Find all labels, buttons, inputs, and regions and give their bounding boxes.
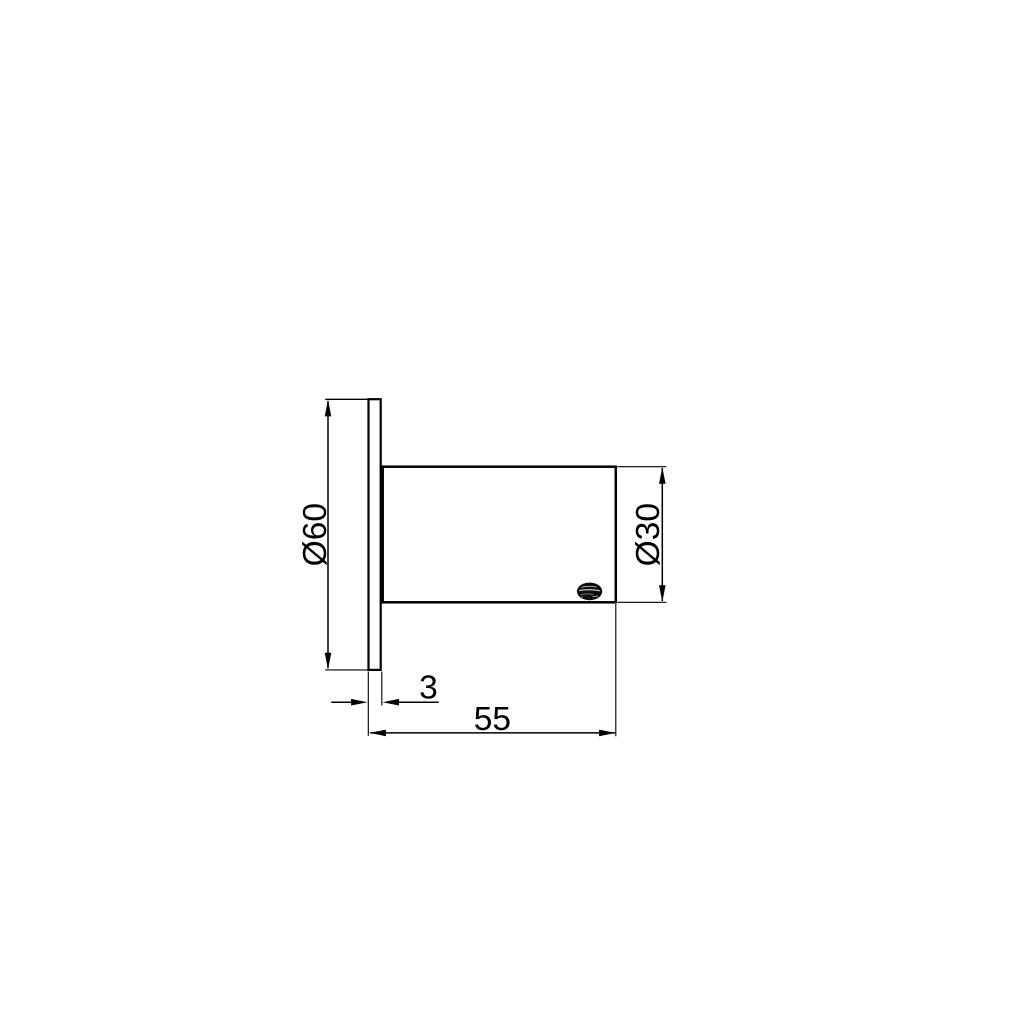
svg-text:Ø30: Ø30 <box>630 503 667 566</box>
svg-text:3: 3 <box>419 669 438 706</box>
svg-text:55: 55 <box>474 701 511 738</box>
svg-text:Ø60: Ø60 <box>297 503 334 566</box>
